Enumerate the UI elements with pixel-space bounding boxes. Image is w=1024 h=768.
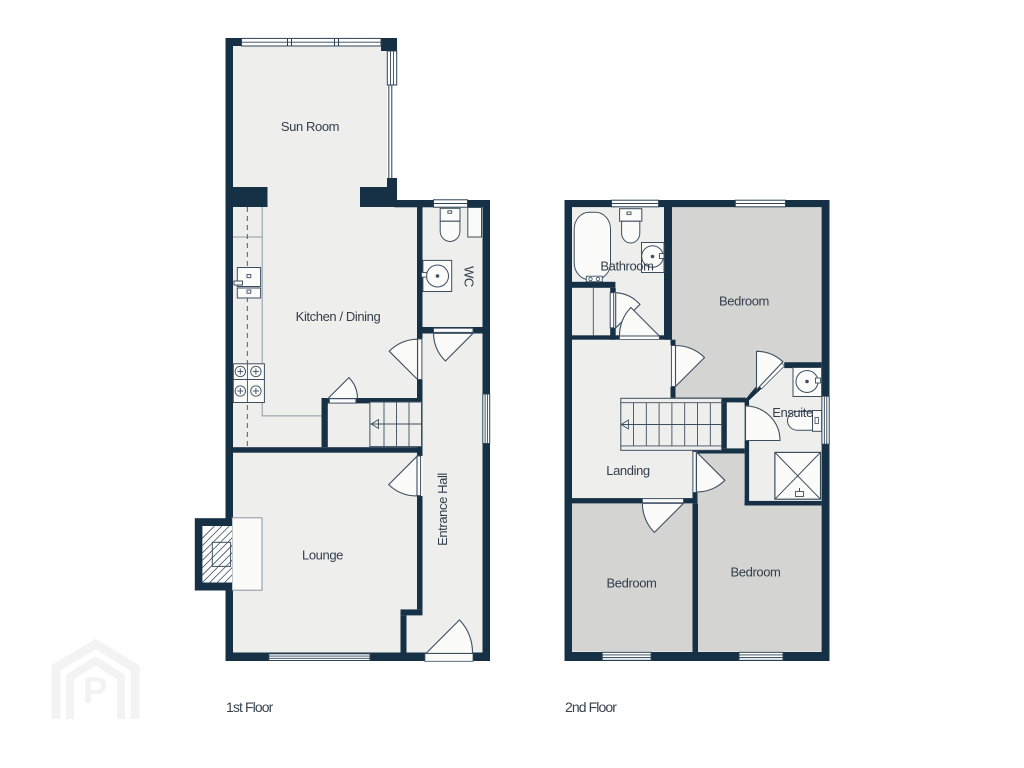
svg-text:2nd Floor: 2nd Floor: [565, 699, 617, 715]
svg-text:Sun Room: Sun Room: [281, 119, 339, 134]
svg-text:Kitchen / Dining: Kitchen / Dining: [296, 309, 381, 324]
svg-text:Bedroom: Bedroom: [731, 565, 781, 580]
svg-text:Entrance Hall: Entrance Hall: [435, 473, 450, 546]
svg-text:WC: WC: [462, 266, 477, 287]
svg-text:P: P: [83, 670, 108, 711]
svg-text:Ensuite: Ensuite: [772, 405, 813, 420]
svg-text:Landing: Landing: [606, 463, 650, 478]
svg-text:Bedroom: Bedroom: [607, 576, 657, 591]
svg-text:Bedroom: Bedroom: [719, 294, 769, 309]
svg-text:Lounge: Lounge: [302, 548, 343, 563]
svg-text:Bathroom: Bathroom: [600, 259, 653, 274]
svg-text:1st Floor: 1st Floor: [226, 699, 274, 715]
